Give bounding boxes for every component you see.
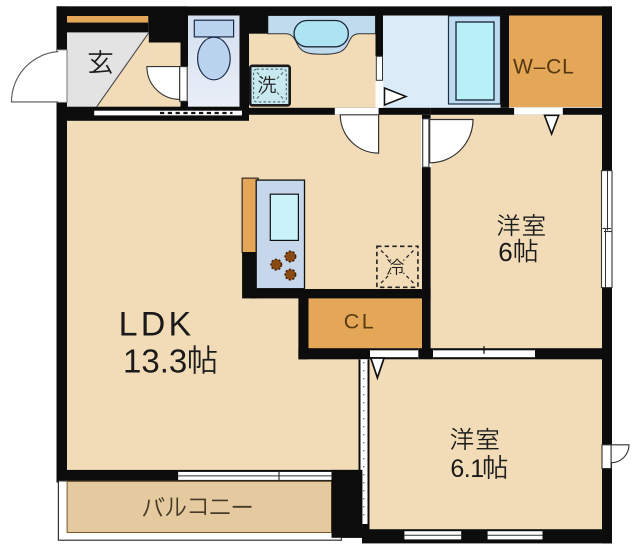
svg-text:LDK: LDK <box>119 306 195 344</box>
svg-text:13.3: 13.3 <box>123 343 187 380</box>
svg-text:CL: CL <box>344 310 376 334</box>
svg-text:6: 6 <box>498 237 512 267</box>
svg-text:W–CL: W–CL <box>513 56 575 79</box>
svg-text:6.1: 6.1 <box>450 455 483 483</box>
